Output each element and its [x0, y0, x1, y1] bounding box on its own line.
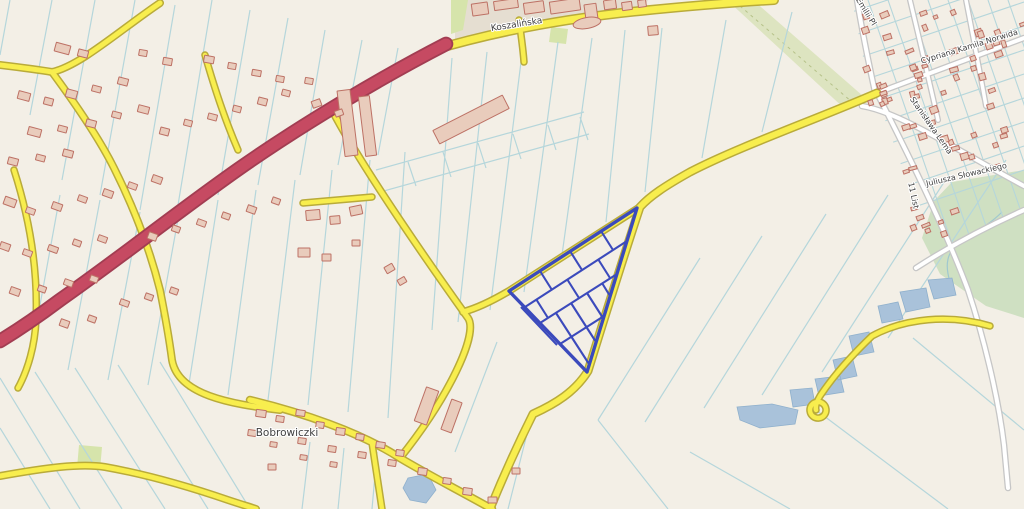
building — [868, 100, 874, 106]
building — [356, 433, 365, 440]
building — [306, 209, 321, 220]
building — [349, 205, 363, 216]
building — [162, 57, 172, 65]
building — [276, 415, 285, 422]
building — [388, 459, 397, 466]
building — [621, 1, 632, 10]
building — [228, 62, 237, 69]
building — [183, 119, 192, 127]
building — [268, 464, 276, 470]
building — [336, 427, 346, 435]
building — [971, 65, 977, 71]
building — [463, 487, 473, 495]
building — [358, 451, 367, 458]
building — [330, 462, 338, 468]
building — [276, 75, 285, 82]
place-label-bobrowiczki: Bobrowiczki — [256, 427, 319, 439]
map-viewport[interactable]: KoszalińskaBobrowiczkiCypriana Kamila No… — [0, 0, 1024, 509]
building — [512, 468, 520, 474]
building — [638, 0, 647, 8]
building — [992, 142, 998, 148]
building — [352, 240, 360, 246]
map-canvas: KoszalińskaBobrowiczkiCypriana Kamila No… — [0, 0, 1024, 509]
building — [978, 73, 986, 81]
building — [940, 230, 947, 237]
building — [396, 449, 405, 456]
building — [523, 1, 544, 15]
building — [471, 2, 489, 16]
building — [281, 89, 290, 97]
building — [139, 49, 148, 56]
building — [880, 101, 885, 106]
building — [300, 455, 308, 461]
building — [256, 409, 267, 417]
building — [443, 477, 452, 484]
building — [296, 409, 306, 416]
building — [270, 442, 278, 448]
building — [418, 467, 428, 475]
building — [648, 26, 659, 36]
building — [861, 26, 869, 34]
building — [917, 78, 922, 83]
building — [603, 0, 616, 10]
building — [376, 441, 386, 448]
building — [969, 154, 975, 160]
building — [941, 90, 947, 95]
building — [933, 15, 938, 20]
building — [917, 84, 923, 90]
building — [330, 216, 341, 225]
building — [252, 69, 262, 76]
building — [298, 248, 310, 257]
building — [322, 254, 331, 261]
building — [305, 77, 314, 84]
building — [971, 132, 977, 138]
building — [328, 445, 337, 452]
building — [960, 152, 969, 160]
building — [488, 497, 497, 503]
green-patch-b — [549, 27, 568, 44]
building — [232, 105, 241, 113]
building — [203, 55, 214, 64]
